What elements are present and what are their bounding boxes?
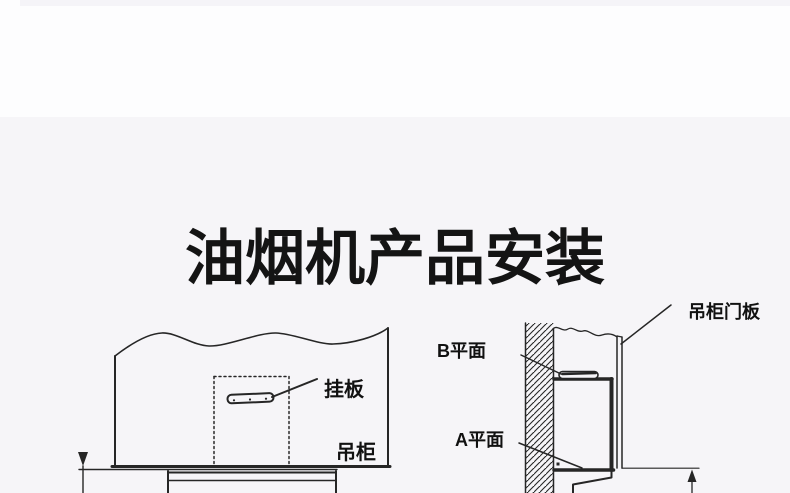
b-plane-label: B平面: [437, 337, 486, 363]
hang-plate-leader-line: [272, 379, 317, 397]
hood-body-section: [554, 379, 614, 470]
cabinet-label: 吊柜: [336, 436, 376, 465]
cabinet-torn-top-edge: [115, 328, 388, 356]
mounting-zone-dashed-box: [214, 377, 289, 466]
wall-hatch-area: [526, 323, 554, 493]
cabinet-side-section-diagram: [519, 305, 699, 493]
hanging-plate: [227, 393, 273, 403]
hang-plate-label: 挂板: [324, 373, 364, 402]
range-hood-top: [168, 471, 336, 493]
height-marker-arrow: [78, 452, 88, 466]
hood-funnel-outline: [573, 472, 612, 493]
cabinet-door-panel-label: 吊柜门板: [688, 298, 760, 324]
a-plane-label: A平面: [455, 426, 504, 452]
door-panel-leader-line: [621, 305, 671, 344]
installation-diagram-artwork: [0, 0, 790, 493]
a-plane-dot: [557, 463, 560, 466]
cabinet-front-diagram: [78, 328, 390, 493]
side-torn-break-line: [552, 327, 617, 337]
b-plane-top-plate: [559, 372, 598, 379]
cabinet-door-panel: [617, 336, 622, 468]
dimension-up-arrowhead: [688, 470, 697, 483]
